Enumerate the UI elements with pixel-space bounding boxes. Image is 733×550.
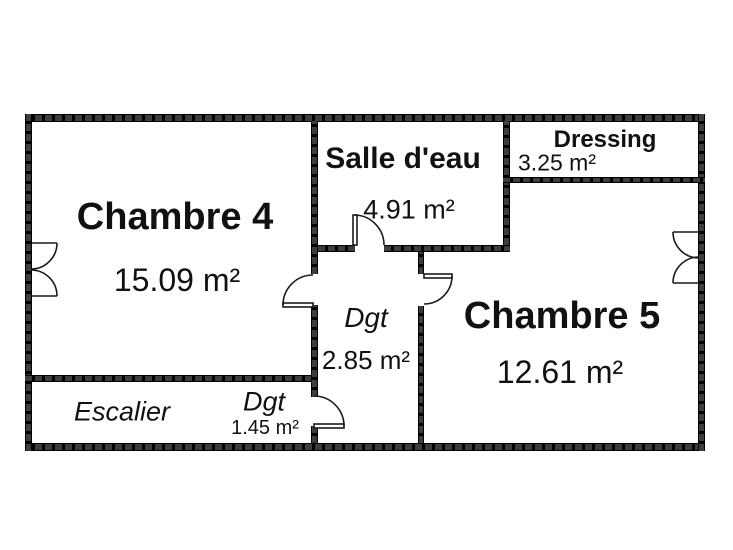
door-swing-icon-escalier	[314, 396, 344, 428]
room-label-chambre5: Chambre 5	[464, 297, 660, 335]
wall-exterior-left	[25, 114, 32, 451]
room-label-salle-deau: Salle d'eau	[325, 144, 481, 174]
room-area-dressing: 3.25 m²	[518, 152, 596, 175]
room-area-chambre4: 15.09 m²	[114, 264, 240, 296]
window-icon-chambre5	[673, 232, 699, 283]
floor-plan: Chambre 4 15.09 m² Salle d'eau 4.91 m² D…	[0, 0, 733, 550]
wall-dgt-chambre5-lower	[418, 306, 424, 443]
room-area-dgt-bottom: 1.45 m²	[231, 418, 299, 438]
wall-exterior-bottom	[25, 443, 705, 451]
room-label-dressing: Dressing	[554, 128, 657, 152]
symbols-layer	[0, 0, 733, 550]
room-area-salle-deau: 4.91 m²	[363, 197, 455, 224]
wall-exterior-right	[698, 114, 705, 451]
door-swing-icon-chambre4	[283, 275, 313, 307]
room-area-chambre5: 12.61 m²	[497, 356, 623, 388]
wall-chambre4-middle-upper	[311, 121, 318, 274]
wall-salledeau-bottom-left	[318, 245, 355, 252]
wall-salledeau-bottom-right	[384, 245, 510, 252]
wall-escalier-dgt-lower	[311, 426, 318, 443]
wall-chambre4-escalier	[25, 375, 311, 382]
wall-salledeau-dressing	[503, 121, 510, 245]
window-icon-chambre4	[31, 243, 57, 296]
door-swing-icon-chambre5	[424, 274, 452, 304]
wall-chambre4-middle-mid	[311, 305, 318, 397]
room-area-dgt-middle: 2.85 m²	[322, 347, 410, 373]
wall-exterior-top	[25, 114, 705, 122]
room-label-chambre4: Chambre 4	[77, 198, 273, 236]
room-label-dgt-middle: Dgt	[344, 304, 388, 332]
wall-dgt-chambre5-upper	[418, 252, 424, 274]
wall-dressing-bottom	[503, 177, 705, 183]
room-label-dgt-bottom: Dgt	[243, 389, 285, 416]
room-label-escalier: Escalier	[74, 399, 170, 426]
